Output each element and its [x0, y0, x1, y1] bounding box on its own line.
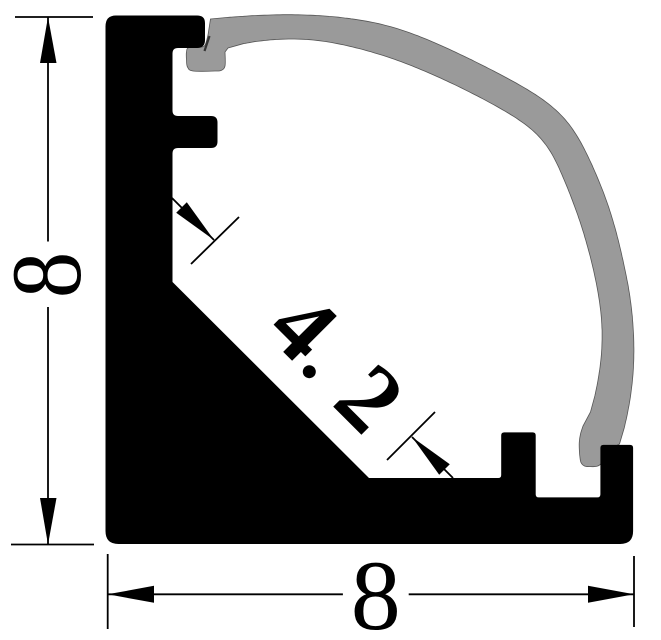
svg-text:8: 8: [351, 540, 401, 640]
svg-text:8: 8: [0, 252, 102, 298]
